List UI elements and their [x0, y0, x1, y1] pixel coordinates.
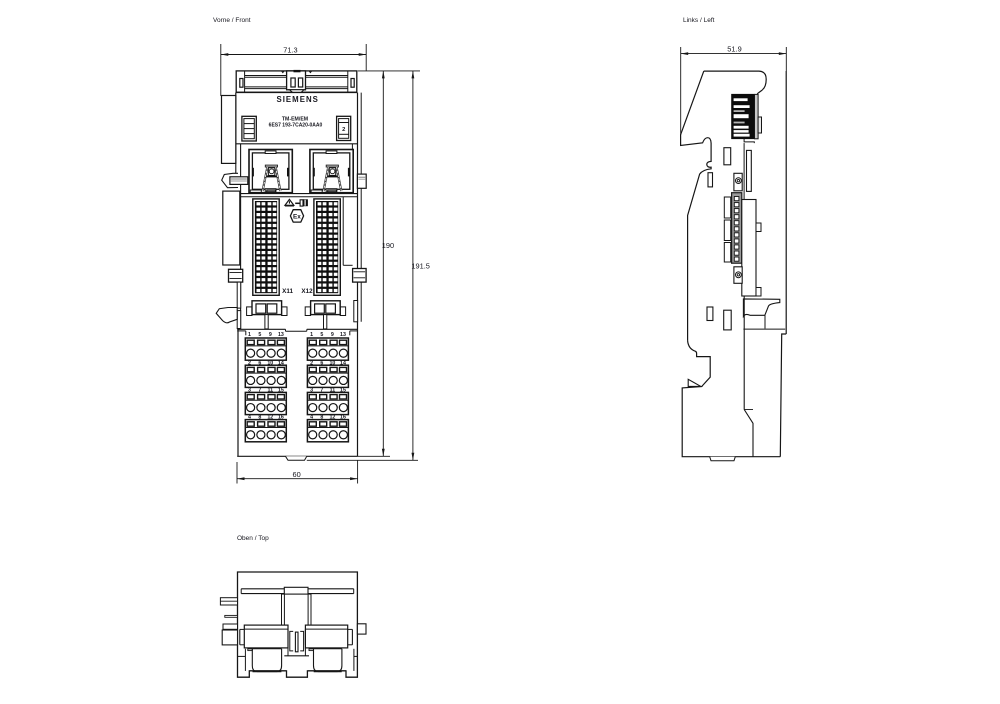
svg-text:X11: X11 — [282, 288, 293, 295]
svg-text:Ex: Ex — [293, 214, 301, 221]
svg-text:190: 190 — [382, 241, 394, 250]
svg-text:71.3: 71.3 — [283, 45, 297, 54]
svg-text:191.5: 191.5 — [411, 262, 430, 271]
svg-text:6ES7 193-7CA20-0AA0: 6ES7 193-7CA20-0AA0 — [269, 122, 323, 128]
svg-text:2: 2 — [342, 127, 345, 133]
svg-text:X12: X12 — [301, 288, 313, 295]
svg-text:Vorne / Front: Vorne / Front — [213, 17, 251, 24]
svg-text:Oben / Top: Oben / Top — [237, 535, 269, 542]
svg-text:60: 60 — [292, 470, 300, 479]
svg-text:Links / Left: Links / Left — [683, 17, 715, 24]
svg-text:51.9: 51.9 — [727, 44, 741, 53]
svg-text:SIEMENS: SIEMENS — [276, 95, 318, 104]
